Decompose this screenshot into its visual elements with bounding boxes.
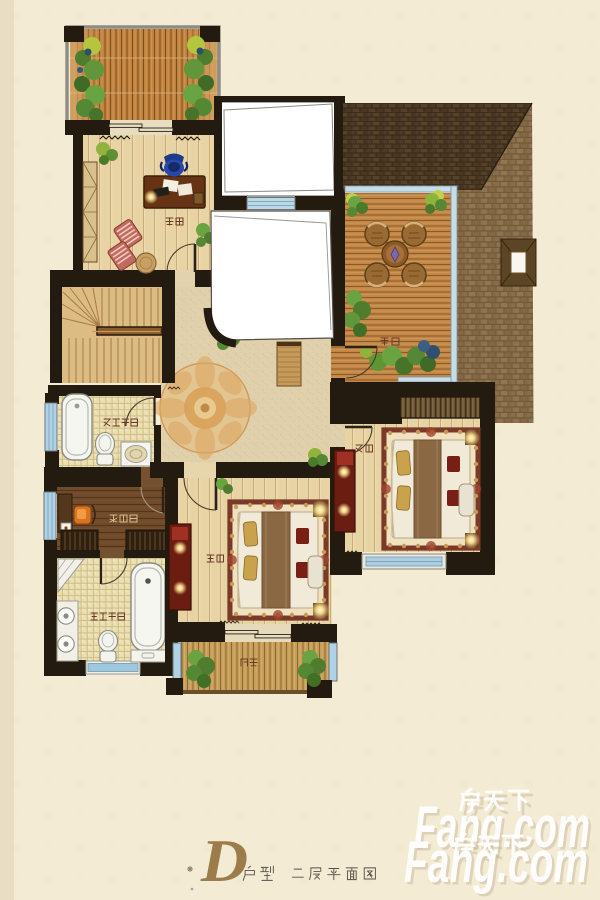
svg-text:Fang.com: Fang.com <box>404 830 588 895</box>
svg-text:D: D <box>200 827 248 894</box>
